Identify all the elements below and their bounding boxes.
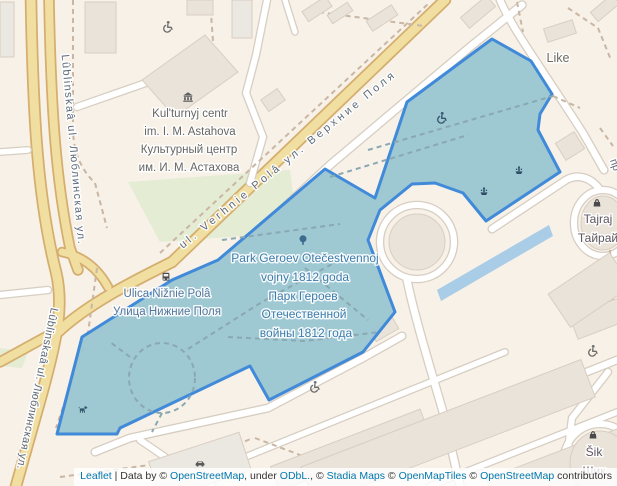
map-label: Отечественной: [262, 307, 347, 321]
building: [187, 0, 213, 15]
attribution-text: , under: [244, 470, 280, 482]
building: [232, 0, 252, 38]
attribution-text: contributors: [554, 470, 612, 482]
map-label: Kul'turnyj centr: [152, 108, 228, 120]
map-label: Šik: [586, 444, 604, 459]
attribution-bar: Leaflet | Data by © OpenStreetMap, under…: [74, 468, 617, 486]
map-tiles: Kul'turnyj centrim. I. M. AstahovaКульту…: [0, 0, 617, 486]
map-label: vojny 1812 goda: [261, 270, 349, 284]
attribution-link[interactable]: OpenMapTiles: [399, 470, 467, 482]
road-segment: [0, 150, 28, 152]
map-label: im. I. M. Astahova: [144, 126, 236, 138]
map-label: им. И. М. Астахова: [139, 162, 240, 174]
map-label: Like: [547, 51, 570, 65]
map-label: Park Geroev Otečestvennoj: [231, 251, 378, 265]
attribution-link[interactable]: OpenStreetMap: [480, 470, 554, 482]
building: [0, 2, 14, 57]
map-label: Тайрай: [578, 231, 617, 245]
attribution-link[interactable]: Stadia Maps: [327, 470, 385, 482]
attribution-text: ©: [467, 470, 481, 482]
map-label: Парк Героев: [268, 289, 337, 303]
bus-icon: [163, 273, 170, 281]
attribution-text: ©: [385, 470, 399, 482]
map-label: Ulica Nižnie Polâ: [124, 288, 212, 300]
map-canvas[interactable]: Kul'turnyj centrim. I. M. AstahovaКульту…: [0, 0, 617, 486]
building: [389, 214, 445, 270]
attribution-link[interactable]: ODbL.: [280, 470, 310, 482]
map-label: Улица Нижние Поля: [113, 306, 221, 318]
map-label: войны 1812 года: [260, 326, 353, 340]
map-label: Культурный центр: [141, 144, 238, 156]
attribution-link[interactable]: OpenStreetMap: [170, 470, 244, 482]
attribution-text: | Data by ©: [112, 470, 170, 482]
attribution-text: , ©: [310, 470, 327, 482]
map-label: Tajraj: [584, 212, 613, 226]
building: [85, 2, 116, 53]
attribution-link[interactable]: Leaflet: [80, 470, 112, 482]
